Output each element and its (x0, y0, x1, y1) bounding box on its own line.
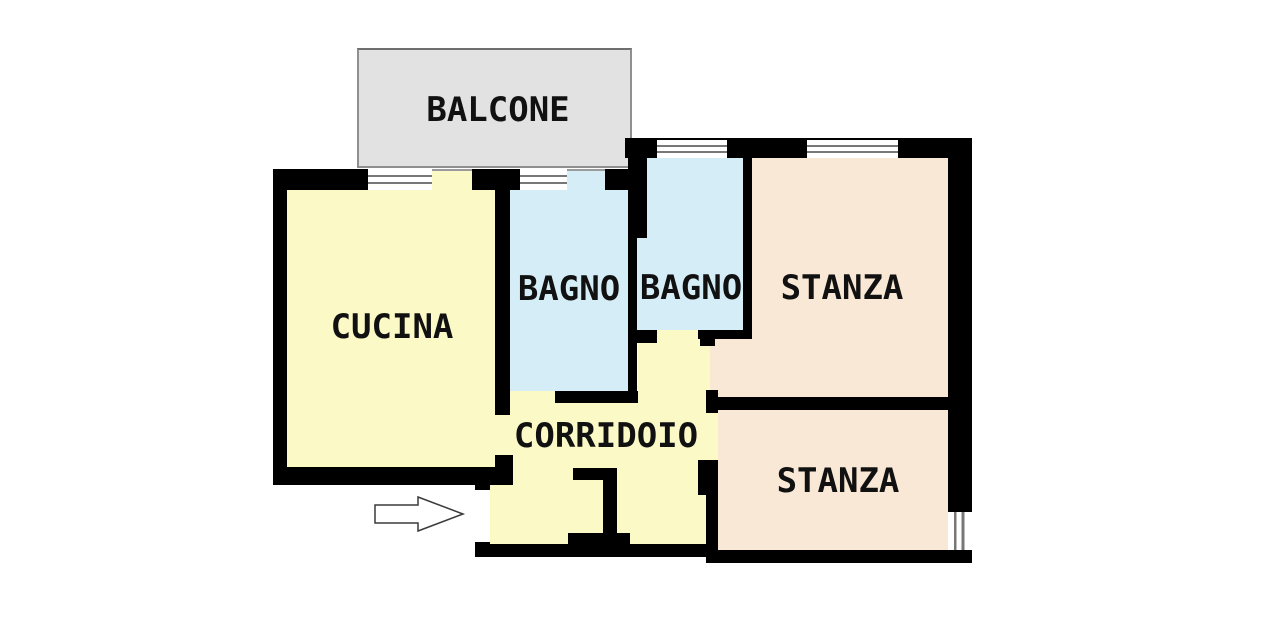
wall-bagno1-bottom (555, 391, 638, 403)
wall-bagno1-bagno2-top (628, 158, 647, 238)
window-cucina (368, 169, 432, 190)
wall-cucina-bagno1-divider (495, 190, 510, 415)
floor-plan: BALCONE CUCINA BAGNO BAGNO STANZA CORRID… (0, 0, 1280, 640)
room-label-bagno-1: BAGNO (518, 269, 620, 309)
window-stanza2 (948, 512, 972, 550)
window-bagno2 (657, 140, 727, 158)
entrance-arrow-icon (371, 493, 467, 535)
wall-hall-closet-vertical (603, 468, 617, 533)
wall-corridor-stanza2-pillar (698, 460, 718, 495)
wall-outer-right (948, 138, 972, 563)
room-label-stanza-1: STANZA (781, 268, 904, 308)
room-label-balcone: BALCONE (426, 90, 569, 130)
wall-bagno2-bottom-left (628, 330, 657, 343)
wall-corridor-stanza2-lower (706, 495, 718, 550)
wall-entrance-top (475, 480, 490, 490)
room-label-stanza-2: STANZA (777, 461, 900, 501)
wall-stanza1-stanza2-divider (706, 397, 948, 410)
wall-stanza1-door-cap (700, 339, 715, 346)
wall-entrance-bottom (475, 542, 490, 557)
room-label-bagno-2: BAGNO (640, 268, 742, 308)
window-stanza1 (807, 140, 898, 158)
balcony-door-cucina (432, 169, 472, 190)
room-label-corridoio: CORRIDOIO (514, 416, 698, 456)
wall-stanza2-bottom (706, 550, 972, 563)
wall-outer-left (273, 169, 287, 485)
wall-bagno1-bagno2-divider (628, 238, 637, 391)
wall-bagno2-stanza1-divider (743, 158, 752, 339)
wall-hall-closet-base (568, 533, 630, 557)
room-stanza1-fill-extension (710, 339, 752, 397)
corridor-cucina-doorway (495, 415, 510, 455)
wall-cucina-door-stub (495, 455, 513, 485)
entrance-opening (475, 490, 490, 542)
room-label-cucina: CUCINA (331, 307, 454, 347)
window-bagno1 (520, 169, 567, 190)
corridor-stanza2-doorway (706, 413, 718, 460)
balcony-door-bagno1 (567, 169, 605, 190)
